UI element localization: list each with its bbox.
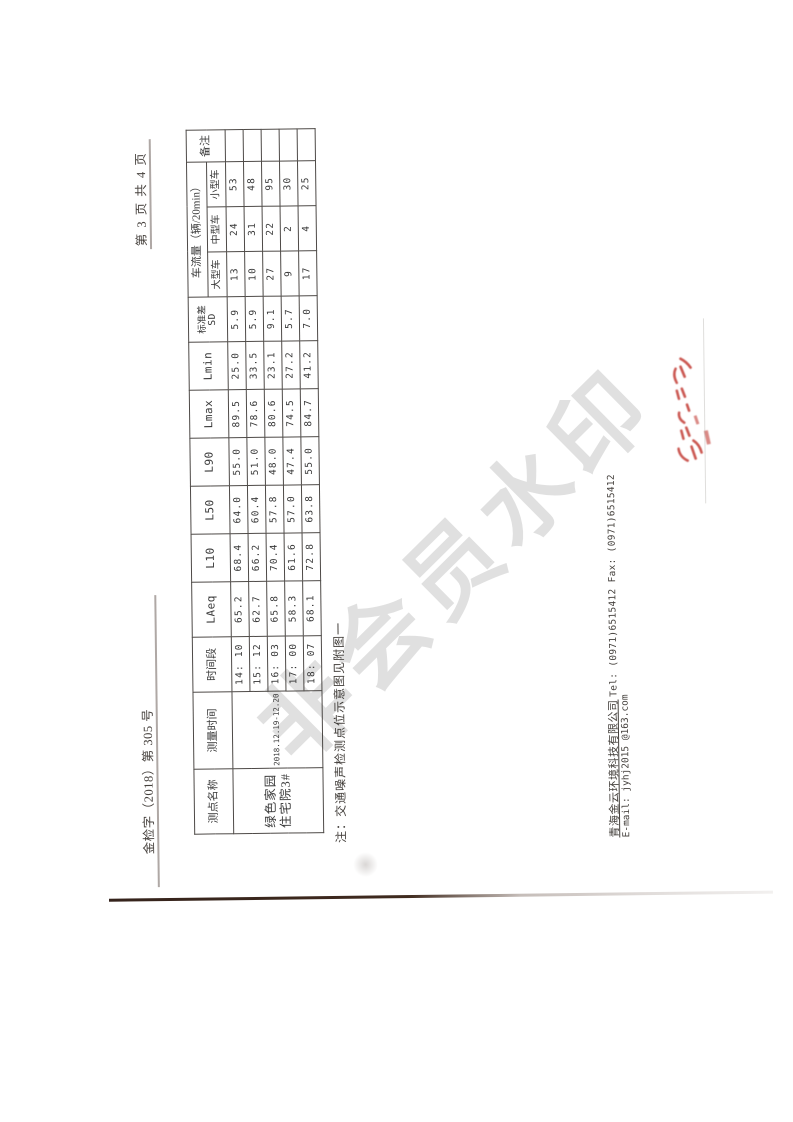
cell-laeq: 65.8 (267, 581, 286, 636)
cell-medium: 24 (226, 207, 245, 252)
header-remark: 备注 (186, 130, 225, 162)
cell-large: 13 (227, 252, 246, 297)
cell-laeq: 68.1 (303, 581, 322, 636)
cell-laeq: 62.7 (249, 581, 268, 636)
cell-l10: 68.4 (230, 534, 249, 582)
header-l10: L10 (191, 534, 231, 582)
cell-time: 18: 07 (303, 636, 322, 691)
cell-lmax: 74.5 (282, 389, 301, 437)
noise-data-table: 测点名称 测量时间 时间段 LAeq L10 L50 L90 Lmax Lmin… (186, 128, 325, 835)
header-measure-time: 测量时间 (193, 692, 233, 769)
paper-edge-shadow (109, 891, 773, 902)
header-time-period: 时间段 (192, 637, 232, 692)
page-indicator: 第 3 页 共 4 页 (130, 153, 150, 247)
cell-l90: 55.0 (229, 438, 248, 486)
cell-l10: 61.6 (284, 533, 303, 581)
point-name-line1: 绿色家园 (263, 769, 279, 833)
cell-remark (297, 129, 315, 161)
cell-l50: 60.4 (247, 485, 266, 533)
cell-remark (243, 129, 261, 161)
cell-l90: 55.0 (301, 437, 320, 485)
header-medium-vehicle: 中型车 (207, 207, 227, 252)
cell-l10: 70.4 (266, 533, 285, 581)
cell-lmax: 78.6 (246, 389, 265, 437)
cell-sd: 5.9 (227, 297, 246, 342)
header-l90: L90 (190, 438, 230, 486)
header-l50: L50 (190, 486, 230, 534)
cell-remark (261, 129, 279, 161)
cell-sd: 5.7 (281, 296, 300, 341)
cell-remark (279, 129, 297, 161)
cell-medium: 22 (262, 206, 281, 251)
doc-number: 金检字（2018）第 305 号 (137, 709, 158, 855)
scanned-document-viewport: 金检字（2018）第 305 号 第 3 页 共 4 页 测点名称 测量时间 时… (0, 0, 793, 1122)
cell-point-name: 绿色家园 住宅院3# (233, 768, 324, 834)
cell-sd: 7.0 (299, 296, 318, 341)
cell-l90: 48.0 (265, 437, 284, 485)
cell-large: 17 (299, 251, 318, 296)
cell-measure-time: 2018.12.19-12.20 (232, 691, 323, 769)
cell-lmax: 89.5 (228, 390, 247, 438)
cell-small: 95 (261, 161, 280, 206)
cell-lmin: 23.1 (264, 341, 283, 389)
cell-small: 48 (243, 161, 262, 206)
cell-lmax: 80.6 (264, 389, 283, 437)
cell-large: 27 (263, 251, 282, 296)
footer-company-line: 青海金云环境科技有限公司 Tel: (0971)6515412 Fax: (09… (602, 474, 622, 838)
cell-laeq: 58.3 (285, 581, 304, 636)
cell-medium: 31 (244, 206, 263, 251)
company-tel-fax: Tel: (0971)6515412 Fax: (0971)6515412 (606, 474, 620, 697)
cell-l10: 72.8 (302, 533, 321, 581)
cell-large: 9 (281, 251, 300, 296)
header-traffic-group: 车流量（辆/20min） (186, 162, 208, 297)
cell-time: 14: 10 (231, 637, 250, 692)
cell-l50: 57.8 (265, 485, 284, 533)
cell-l50: 63.8 (301, 485, 320, 533)
cell-l10: 66.2 (248, 533, 267, 581)
page-indicator-underline (149, 139, 152, 249)
note-line: 注：交通噪声检测点位示意图见附图一 (330, 622, 350, 843)
header-lmax: Lmax (189, 390, 229, 438)
cell-lmin: 27.2 (282, 341, 301, 389)
scanned-page: 金检字（2018）第 305 号 第 3 页 共 4 页 测点名称 测量时间 时… (0, 0, 793, 1122)
cell-lmin: 41.2 (300, 341, 319, 389)
header-large-vehicle: 大型车 (208, 252, 228, 297)
cell-lmax: 84.7 (300, 389, 319, 437)
cell-large: 10 (245, 251, 264, 296)
header-sd-en: SD (208, 297, 219, 341)
header-small-vehicle: 小型车 (206, 162, 226, 207)
header-point-name: 测点名称 (194, 769, 234, 834)
footer-email: E-mail: jyhj2015 @163.com (620, 694, 633, 837)
cell-medium: 2 (280, 206, 299, 251)
header-lmin: Lmin (189, 342, 229, 390)
point-name-line2: 住宅院3# (278, 768, 294, 832)
cell-l50: 57.0 (283, 485, 302, 533)
cell-sd: 9.1 (263, 296, 282, 341)
cell-small: 53 (225, 162, 244, 207)
red-seal-fragment-icon (668, 353, 717, 469)
header-sd: 标准差 SD (188, 297, 228, 342)
cell-l90: 51.0 (247, 437, 266, 485)
cell-l50: 64.0 (229, 486, 248, 534)
cell-l90: 47.4 (283, 437, 302, 485)
cell-time: 16: 03 (267, 636, 286, 691)
cell-time: 17: 00 (285, 636, 304, 691)
cell-lmin: 25.0 (228, 342, 247, 390)
cell-small: 30 (279, 161, 298, 206)
ink-smudge (353, 851, 377, 877)
cell-remark (225, 130, 243, 162)
cell-laeq: 65.2 (231, 582, 250, 637)
cell-lmin: 33.5 (246, 341, 265, 389)
header-laeq: LAeq (192, 582, 232, 637)
cell-medium: 4 (298, 206, 317, 251)
cell-time: 15: 12 (249, 636, 268, 691)
cell-sd: 5.9 (245, 296, 264, 341)
cell-small: 25 (297, 161, 316, 206)
